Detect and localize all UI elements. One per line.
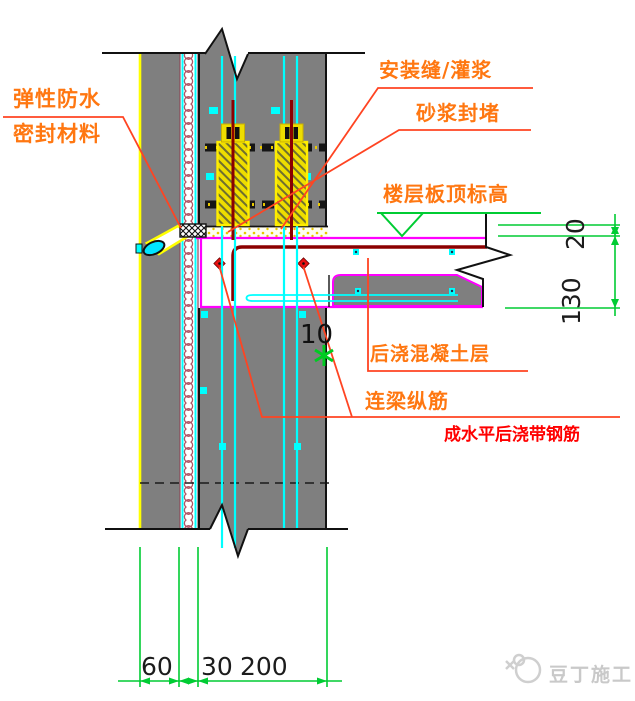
exterior-wall-leaf bbox=[141, 54, 180, 529]
label-floor-elevation: 楼层板顶标高 bbox=[383, 184, 509, 205]
dim-130: 130 bbox=[557, 277, 586, 325]
label-elastic-waterproof-2: 密封材料 bbox=[13, 123, 101, 145]
dim-60: 60 bbox=[141, 652, 173, 681]
watermark-text: 豆丁施工 bbox=[549, 660, 633, 687]
label-install-seam: 安装缝/灌浆 bbox=[379, 60, 492, 81]
seal-clip bbox=[136, 244, 142, 253]
label-elastic-waterproof-1: 弹性防水 bbox=[13, 88, 101, 110]
label-mortar-seal: 砂浆封堵 bbox=[416, 103, 500, 124]
dim-200: 200 bbox=[240, 652, 288, 681]
label-post-cast-layer: 后浇混凝土层 bbox=[370, 345, 490, 365]
detail-drawing: 弹性防水 密封材料 安装缝/灌浆 砂浆封堵 楼层板顶标高 后浇混凝土层 连梁纵筋… bbox=[0, 0, 635, 701]
dim-20: 20 bbox=[561, 218, 590, 250]
label-gap-10: 10 bbox=[300, 320, 333, 350]
watermark-logo-icon bbox=[506, 655, 540, 682]
label-beam-rebar: 连梁纵筋 bbox=[365, 391, 449, 412]
label-horizontal-band-note: 成水平后浇带钢筋 bbox=[444, 420, 580, 445]
backer-rod-hatch bbox=[180, 224, 206, 237]
dim-30: 30 bbox=[201, 652, 233, 681]
